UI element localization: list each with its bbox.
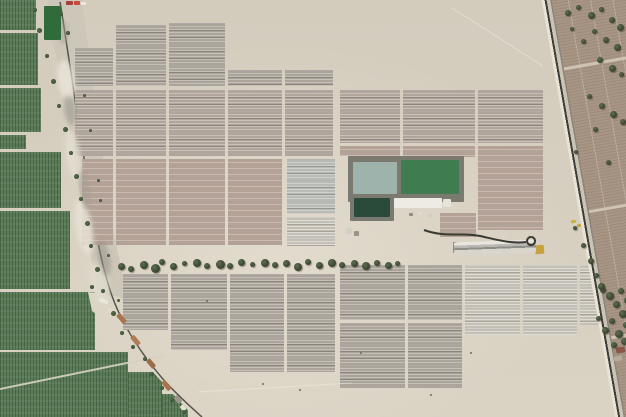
faint-track: [198, 383, 352, 392]
faint-track: [452, 8, 543, 66]
hose-coil: [527, 237, 535, 245]
overlay-lines: [0, 0, 626, 417]
satellite-image: [0, 0, 626, 417]
irrigation-hose: [424, 230, 526, 243]
